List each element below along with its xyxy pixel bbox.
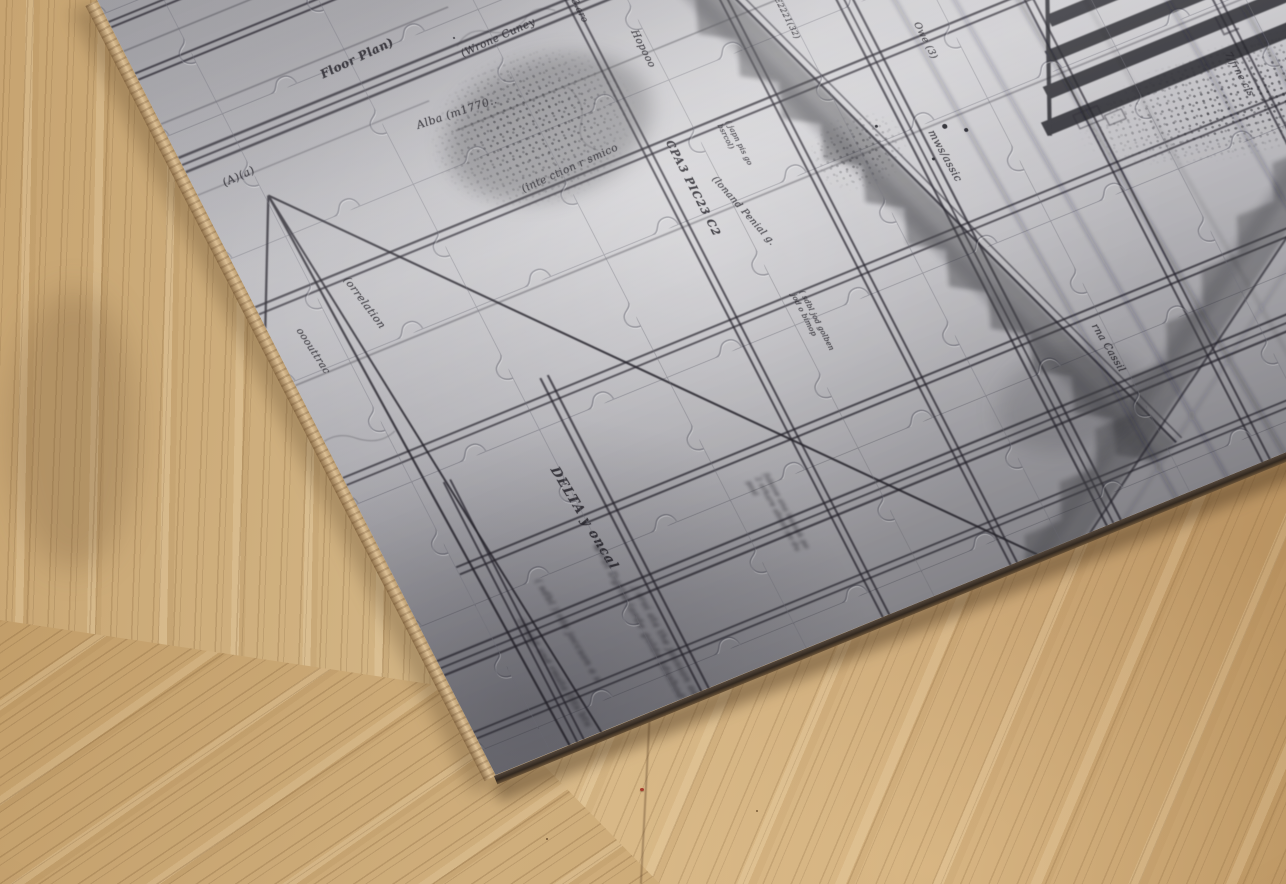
crumb [756,810,758,812]
red-speck [640,788,644,791]
photo-jigsaw-puzzle-on-table: { "scene": { "description": "Photograph … [0,0,1286,884]
wood-dark-patch [8,290,138,570]
crumb [546,838,548,840]
